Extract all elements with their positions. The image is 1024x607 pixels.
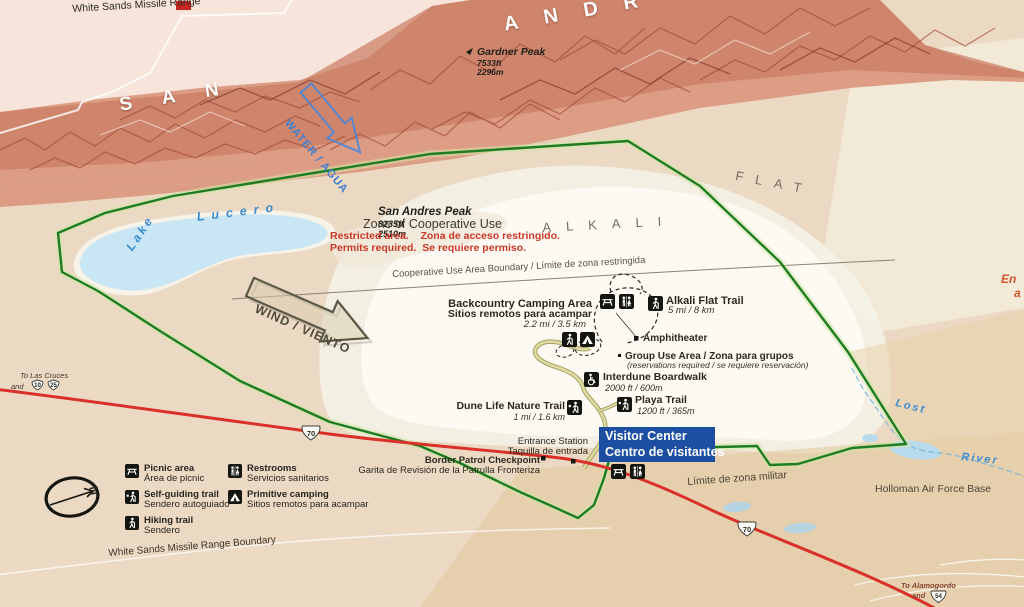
zone-cooperative-use-title: Zone of Cooperative Use: [363, 217, 502, 231]
restrooms-icon: [630, 464, 645, 479]
interstate-10-number: 10: [32, 383, 43, 389]
group-use-area-note: (reservations required / se requiere res…: [627, 361, 808, 371]
hiker-icon: [562, 332, 577, 347]
legend-camping-icon: [228, 490, 242, 504]
restricted-area-line1: Restricted area. Zona de acceso restring…: [330, 231, 560, 243]
restricted-area-line2: Permits required. Se requiere permiso.: [330, 243, 526, 255]
wheelchair-icon: [584, 372, 599, 387]
picnic-table-icon: [611, 464, 626, 479]
to-alamogordo-label: To Alamogordo: [901, 582, 956, 590]
amphitheater-label: Amphitheater: [643, 333, 707, 344]
alkali-flat-trail-dist: 5 mi / 8 km: [668, 306, 714, 317]
legend-selfguiding-l2: Sendero autoguiado: [144, 500, 230, 511]
edge-cropped-label-2: a: [1014, 287, 1021, 300]
playa-trail-label: Playa Trail: [635, 395, 687, 407]
legend-hiking-icon: [125, 516, 139, 530]
legend-picnic-l2: Área de picnic: [144, 474, 204, 485]
pond: [862, 434, 878, 442]
visitor-center-box: Visitor Center Centro de visitantes: [599, 427, 715, 462]
us-70-number: 70: [739, 525, 755, 534]
interdune-boardwalk-dist: 2000 ft / 600m: [605, 383, 663, 393]
hiker-icon: [648, 296, 663, 311]
legend-picnic-icon: [125, 464, 139, 478]
legend-restrooms-icon: [228, 464, 242, 478]
playa-trail-dist: 1200 ft / 365m: [637, 406, 695, 416]
restrooms-icon: [619, 294, 634, 309]
legend-self-guiding-icon: [125, 490, 139, 504]
entrance-station-marker: [571, 459, 576, 464]
gardner-peak-name: Gardner Peak: [477, 47, 545, 59]
backcountry-camping-dist: 2.2 mi / 3.5 km: [416, 320, 586, 331]
holloman-label: Holloman Air Force Base: [875, 484, 991, 496]
dune-life-trail-label: Dune Life Nature Trail: [425, 401, 565, 413]
border-patrol-line2: Garita de Revisión de la Patrulla Fronte…: [338, 466, 540, 477]
to-las-cruces-label: To Las Cruces: [20, 372, 68, 380]
self-guiding-trail-icon: [567, 400, 582, 415]
us-54-number: 54: [932, 594, 945, 600]
edge-cropped-label-1: En: [1001, 273, 1016, 286]
interstate-25-number: 25: [48, 383, 59, 389]
white-sands-park-map: White Sands Missile Range SAN ANDR San A…: [0, 0, 1024, 607]
picnic-table-icon: [600, 294, 615, 309]
visitor-center-label-en: Visitor Center: [605, 429, 709, 445]
tent-icon: [580, 332, 595, 347]
us-70-number: 70: [303, 429, 319, 438]
visitor-center-label-es: Centro de visitantes: [605, 445, 709, 461]
to-alamogordo-and: and: [912, 592, 925, 600]
legend-camping-l2: Sitios remotos para acampar: [247, 500, 368, 511]
amphitheater-marker: [634, 336, 639, 341]
group-use-marker: [618, 354, 621, 357]
legend-hiking-l2: Sendero: [144, 526, 180, 537]
to-las-cruces-and: and: [11, 383, 24, 391]
legend-restrooms-l2: Servicios sanitarios: [247, 474, 329, 485]
dune-life-trail-dist: 1 mi / 1.6 km: [425, 412, 565, 422]
interdune-boardwalk-label: Interdune Boardwalk: [603, 372, 707, 384]
gardner-peak-elev-m: 2296m: [477, 68, 503, 78]
self-guiding-trail-icon: [617, 397, 632, 412]
